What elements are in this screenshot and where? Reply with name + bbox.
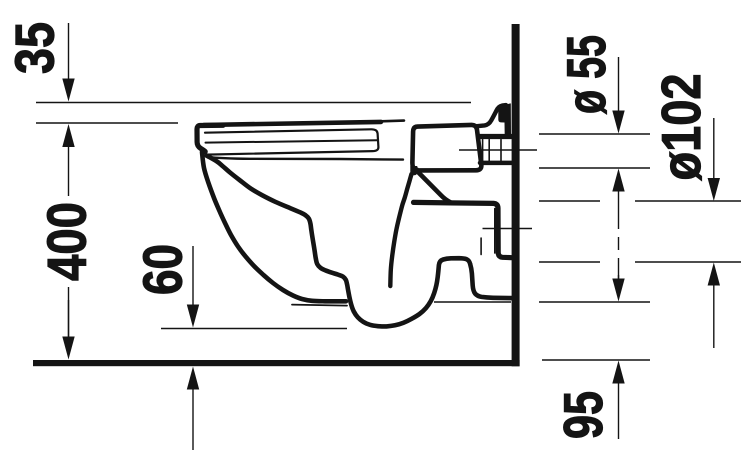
svg-text:ø 55: ø 55: [555, 35, 617, 114]
svg-text:35: 35: [4, 22, 66, 74]
svg-text:400: 400: [36, 202, 98, 281]
svg-text:ø102: ø102: [650, 74, 712, 181]
svg-text:60: 60: [132, 244, 194, 295]
svg-text:95: 95: [552, 391, 614, 439]
